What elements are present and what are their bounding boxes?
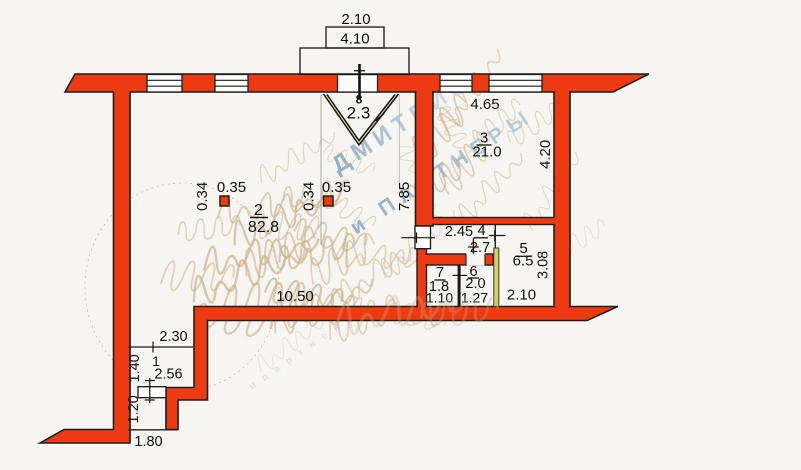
svg-text:21.0: 21.0	[472, 144, 501, 161]
svg-text:2.30: 2.30	[159, 329, 187, 345]
svg-text:1.40: 1.40	[127, 354, 143, 382]
svg-text:2.10: 2.10	[507, 287, 536, 304]
svg-text:6.5: 6.5	[513, 253, 534, 270]
svg-text:82.8: 82.8	[248, 219, 279, 236]
svg-text:2.56: 2.56	[154, 367, 182, 383]
svg-text:0.35: 0.35	[217, 179, 246, 196]
svg-text:1.80: 1.80	[134, 434, 162, 450]
svg-text:4.10: 4.10	[340, 31, 369, 48]
svg-text:2.3: 2.3	[347, 104, 371, 123]
svg-text:4.20: 4.20	[537, 140, 554, 169]
svg-text:2: 2	[254, 202, 263, 219]
svg-text:0.34: 0.34	[194, 182, 211, 211]
svg-text:3.08: 3.08	[536, 251, 552, 279]
svg-text:0.34: 0.34	[301, 182, 318, 211]
svg-text:2.10: 2.10	[341, 11, 370, 28]
svg-text:1.20: 1.20	[126, 395, 142, 423]
svg-text:2.7: 2.7	[470, 240, 490, 256]
svg-text:10.50: 10.50	[276, 288, 314, 305]
svg-text:4: 4	[477, 223, 485, 239]
svg-text:2.45: 2.45	[445, 224, 473, 240]
svg-text:0.35: 0.35	[322, 179, 351, 196]
svg-text:7.85: 7.85	[396, 182, 413, 211]
svg-text:4.65: 4.65	[470, 96, 499, 113]
